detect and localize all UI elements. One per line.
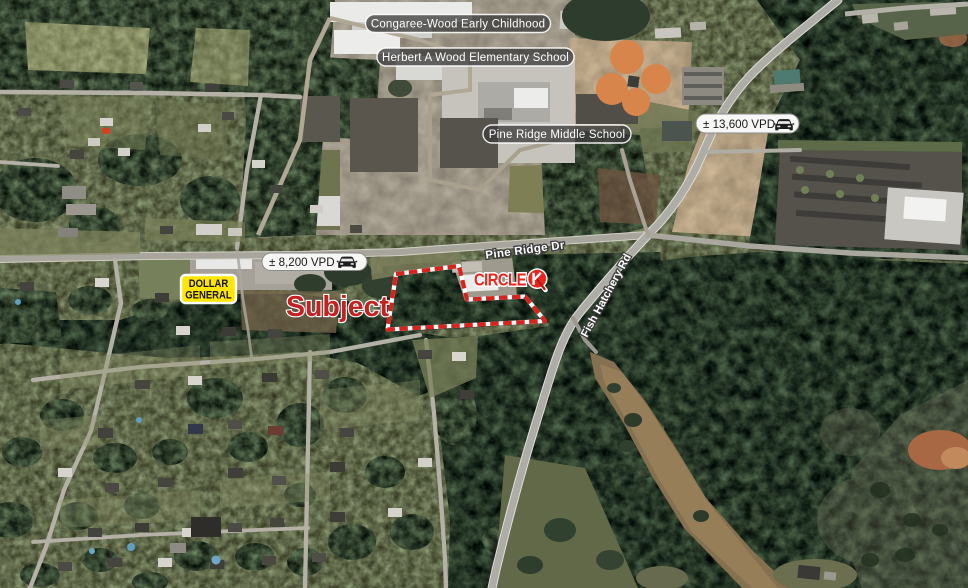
svg-text:GENERAL: GENERAL [185,290,231,302]
svg-text:DOLLAR: DOLLAR [189,279,229,291]
svg-text:Subject: Subject [286,291,389,323]
svg-text:Pine Ridge Middle School: Pine Ridge Middle School [489,129,626,141]
svg-text:CIRCLE: CIRCLE [474,270,526,290]
svg-text:Congaree-Wood Early Childhood: Congaree-Wood Early Childhood [371,19,545,31]
svg-text:± 8,200 VPD: ± 8,200 VPD [269,256,335,269]
svg-text:Herbert A Wood Elementary Scho: Herbert A Wood Elementary School [382,52,569,64]
svg-text:± 13,600 VPD: ± 13,600 VPD [703,118,775,131]
